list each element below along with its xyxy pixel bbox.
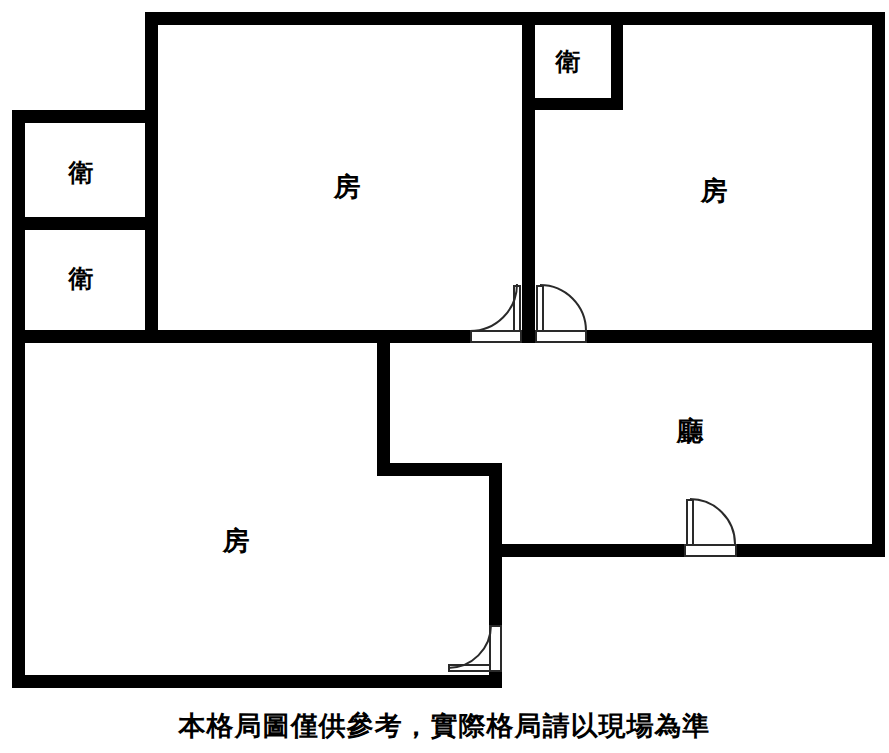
room-label-bathroom-top-right: 衛 [556,49,581,74]
room-label-bedroom-bottom-left: 房 [223,527,250,554]
room-label-bathroom-upper-left: 衛 [69,160,94,185]
door-arc-bedroom-top-center [470,284,517,331]
door-swing-arcs [0,0,889,753]
door-arc-bedroom-top-right [540,285,586,331]
room-label-bedroom-top-center: 房 [334,173,361,200]
door-arc-living-room [690,499,735,544]
floor-plan: 衛 衛 衛 房 房 房 廳 本格局圖僅供參考，實際格局請以現場為準 [0,0,889,753]
room-label-living-room: 廳 [677,417,704,444]
room-label-bathroom-lower-left: 衛 [69,266,94,291]
disclaimer-caption: 本格局圖僅供參考，實際格局請以現場為準 [0,710,889,742]
room-label-bedroom-top-right: 房 [701,177,728,204]
door-arc-bedroom-bottom-left [448,625,491,668]
